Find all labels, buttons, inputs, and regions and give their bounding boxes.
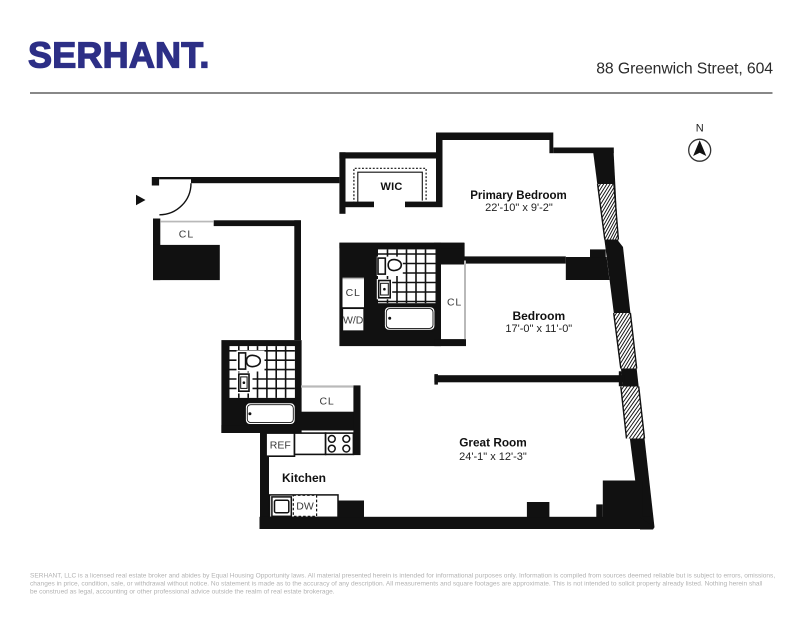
- svg-text:REF: REF: [270, 440, 291, 452]
- svg-text:22'-10" x 9'-2": 22'-10" x 9'-2": [485, 202, 553, 214]
- svg-text:24'-1" x 12'-3": 24'-1" x 12'-3": [459, 451, 527, 463]
- svg-text:CL: CL: [346, 287, 361, 299]
- svg-text:changes in price, condition, s: changes in price, condition, sale, or wi…: [30, 581, 763, 588]
- svg-text:CL: CL: [319, 396, 334, 408]
- svg-text:N: N: [696, 123, 704, 135]
- svg-text:Great Room: Great Room: [459, 436, 527, 450]
- svg-text:W/D: W/D: [343, 315, 364, 327]
- svg-text:DW: DW: [296, 501, 314, 513]
- svg-text:SERHANT.: SERHANT.: [28, 35, 210, 76]
- svg-text:Kitchen: Kitchen: [282, 471, 326, 485]
- svg-text:CL: CL: [447, 297, 462, 309]
- svg-text:Bedroom: Bedroom: [512, 309, 565, 323]
- svg-text:be construed as legal, account: be construed as legal, accounting or oth…: [30, 589, 335, 596]
- svg-text:17'-0" x 11'-0": 17'-0" x 11'-0": [505, 323, 572, 335]
- svg-text:SERHANT, LLC is a licensed rea: SERHANT, LLC is a licensed real estate b…: [30, 573, 775, 580]
- svg-text:CL: CL: [179, 229, 194, 241]
- svg-text:Primary Bedroom: Primary Bedroom: [470, 190, 567, 202]
- svg-text:88 Greenwich Street, 604: 88 Greenwich Street, 604: [596, 61, 773, 78]
- svg-text:WIC: WIC: [381, 181, 403, 193]
